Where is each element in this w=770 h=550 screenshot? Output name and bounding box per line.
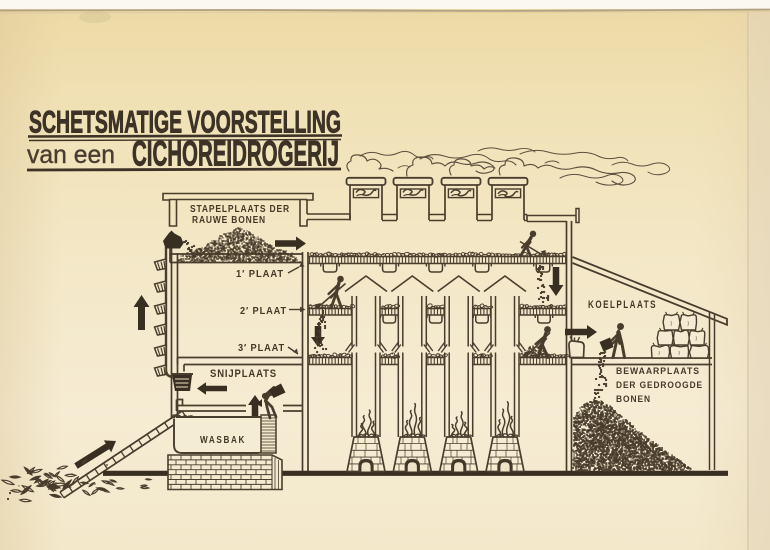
- svg-text:SNIJPLAATS: SNIJPLAATS: [210, 368, 277, 380]
- svg-text:BONEN: BONEN: [616, 394, 651, 404]
- svg-text:BEWAARPLAATS: BEWAARPLAATS: [616, 366, 700, 376]
- svg-text:WASBAK: WASBAK: [200, 435, 246, 446]
- svg-text:1′ PLAAT: 1′ PLAAT: [236, 268, 284, 280]
- svg-text:CICHOREIDROGERIJ: CICHOREIDROGERIJ: [132, 134, 339, 174]
- svg-text:KOELPLAATS: KOELPLAATS: [588, 299, 657, 311]
- svg-text:DER GEDROOGDE: DER GEDROOGDE: [616, 380, 703, 390]
- svg-text:3′ PLAAT: 3′ PLAAT: [238, 342, 285, 354]
- svg-text:van een: van een: [27, 141, 115, 169]
- svg-text:STAPELPLAATS DER: STAPELPLAATS DER: [190, 204, 290, 215]
- svg-text:RAUWE BONEN: RAUWE BONEN: [192, 215, 266, 226]
- svg-text:2′ PLAAT: 2′ PLAAT: [240, 305, 287, 317]
